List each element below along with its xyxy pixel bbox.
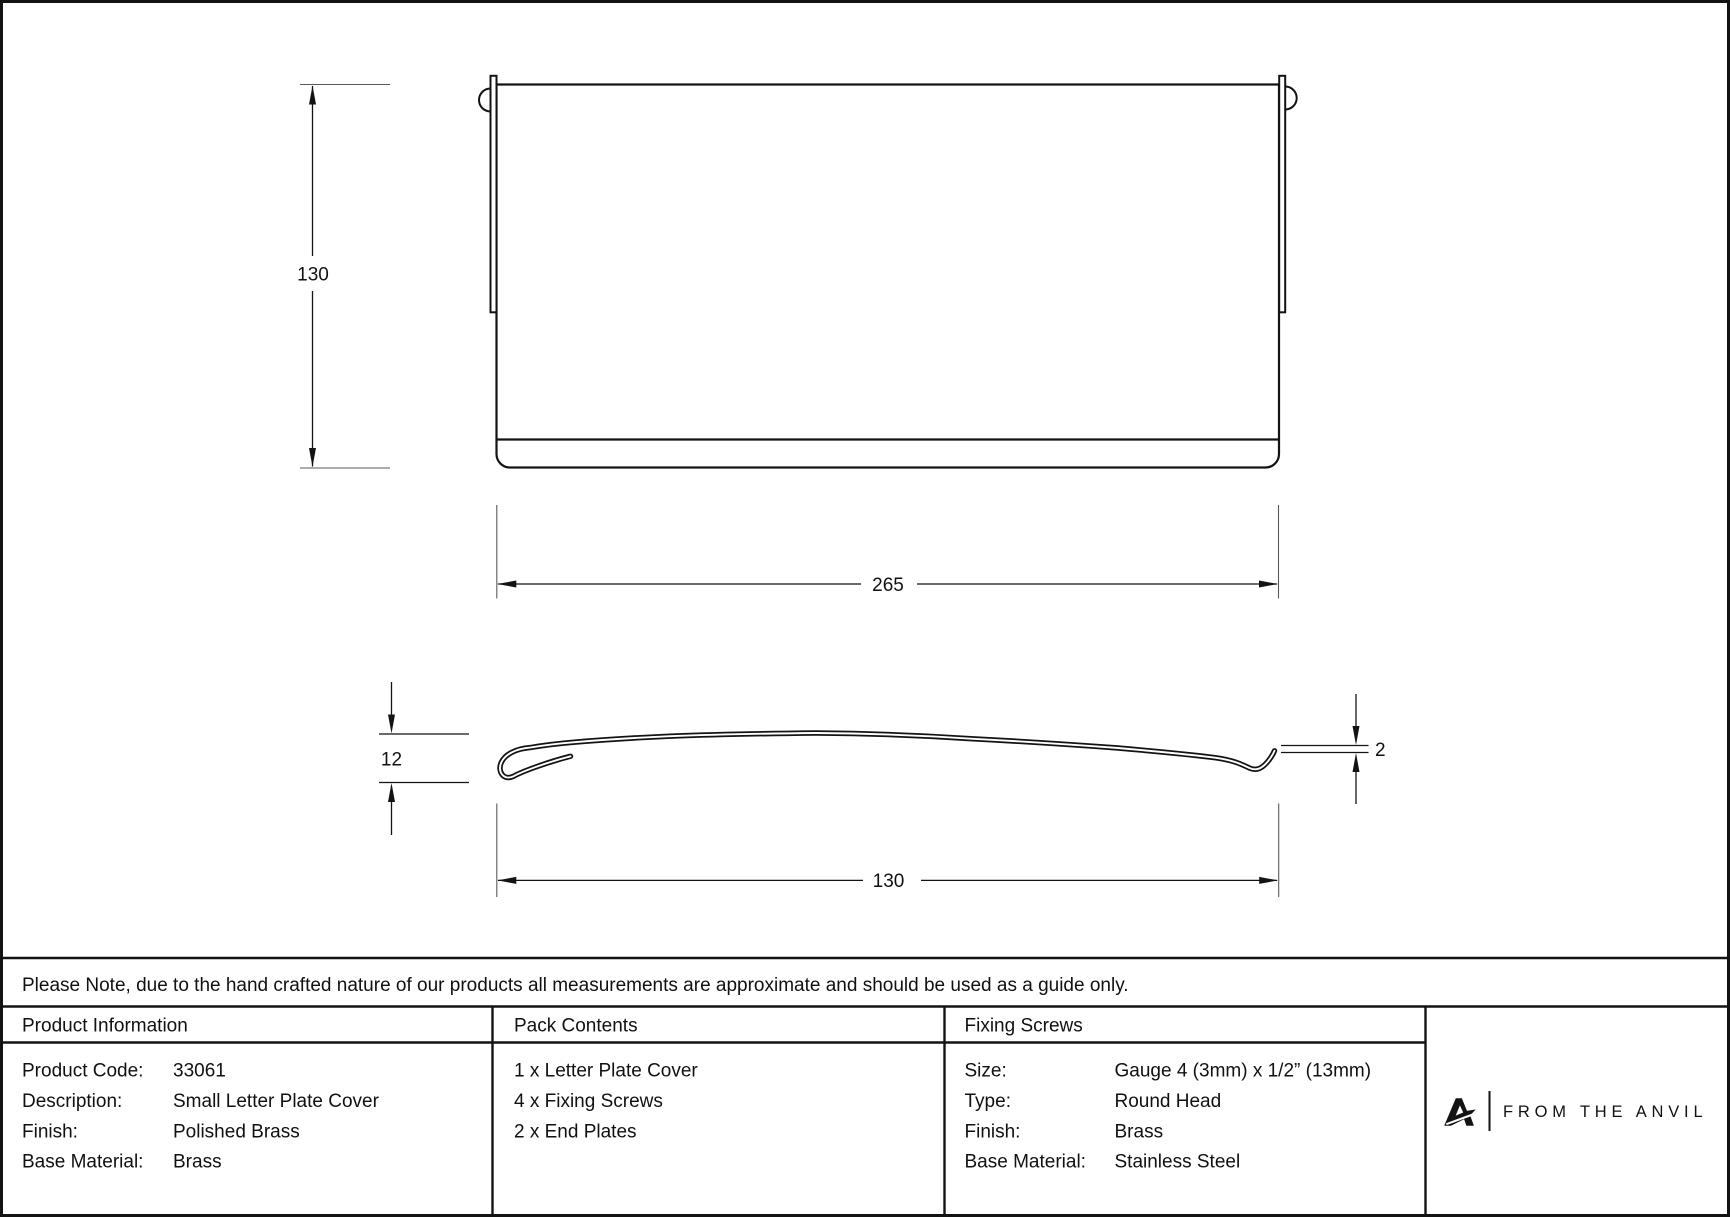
svg-text:Polished Brass: Polished Brass <box>173 1122 300 1143</box>
svg-text:Base Material:: Base Material: <box>22 1152 143 1173</box>
svg-text:FROM THE ANVIL: FROM THE ANVIL <box>1503 1103 1707 1121</box>
svg-text:Description:: Description: <box>22 1091 122 1112</box>
svg-text:Please Note, due to the hand c: Please Note, due to the hand crafted nat… <box>22 975 1129 996</box>
svg-text:Base Material:: Base Material: <box>965 1152 1086 1173</box>
svg-text:Finish:: Finish: <box>22 1122 78 1143</box>
svg-text:Gauge 4 (3mm) x 1/2” (13mm): Gauge 4 (3mm) x 1/2” (13mm) <box>1115 1061 1372 1082</box>
svg-text:130: 130 <box>873 871 905 892</box>
svg-text:Brass: Brass <box>173 1152 222 1173</box>
svg-text:4 x Fixing Screws: 4 x Fixing Screws <box>514 1091 663 1112</box>
svg-text:Pack Contents: Pack Contents <box>514 1016 638 1037</box>
svg-text:Size:: Size: <box>965 1061 1007 1082</box>
svg-text:Stainless Steel: Stainless Steel <box>1115 1152 1241 1173</box>
svg-text:Product Information: Product Information <box>22 1016 188 1037</box>
svg-text:Finish:: Finish: <box>965 1122 1021 1143</box>
svg-text:1 x Letter Plate Cover: 1 x Letter Plate Cover <box>514 1061 698 1082</box>
svg-text:265: 265 <box>872 575 904 596</box>
svg-text:Small Letter Plate Cover: Small Letter Plate Cover <box>173 1091 380 1112</box>
svg-text:130: 130 <box>297 264 329 285</box>
svg-text:Fixing Screws: Fixing Screws <box>965 1016 1083 1037</box>
svg-text:33061: 33061 <box>173 1061 226 1082</box>
svg-text:Round Head: Round Head <box>1115 1091 1222 1112</box>
svg-text:Product Code:: Product Code: <box>22 1061 143 1082</box>
svg-text:Type:: Type: <box>965 1091 1011 1112</box>
svg-text:2: 2 <box>1375 740 1386 761</box>
svg-text:12: 12 <box>381 749 402 770</box>
svg-text:Brass: Brass <box>1115 1122 1164 1143</box>
svg-text:2 x End Plates: 2 x End Plates <box>514 1122 637 1143</box>
